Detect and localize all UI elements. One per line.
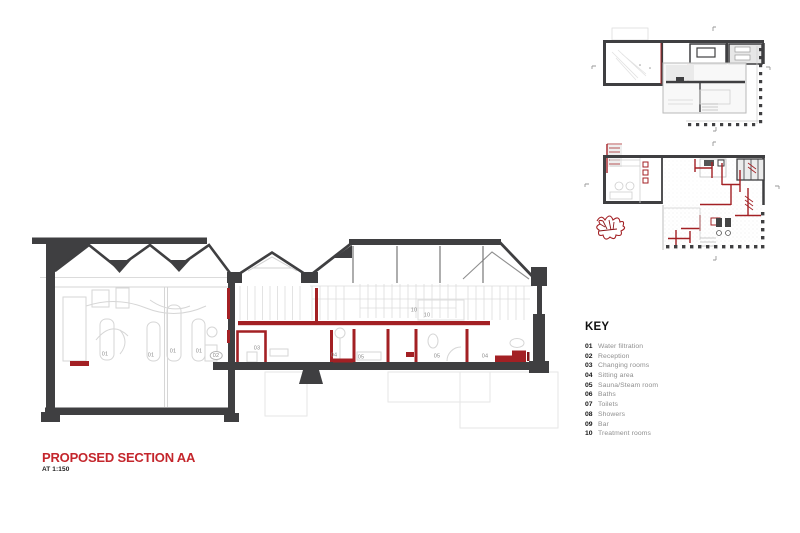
key-item-label: Sitting area: [598, 372, 634, 379]
key-item-label: Changing rooms: [598, 362, 649, 369]
drawing-sheet: 010101010203040510100504 KEY 01 Water fi…: [0, 0, 800, 533]
key-item-label: Sauna/Steam room: [598, 382, 658, 389]
key-item: 04 Sitting area: [585, 372, 765, 382]
key-item: 02 Reception: [585, 353, 765, 363]
key-item-number: 04: [585, 372, 598, 379]
key-item-number: 10: [585, 430, 598, 437]
key-list: 01 Water filtration 02 Reception 03 Chan…: [585, 343, 765, 440]
key-item-number: 02: [585, 353, 598, 360]
section-floor-slabs: [45, 362, 546, 415]
key-item-number: 01: [585, 343, 598, 350]
drawing-title: PROPOSED SECTION AA: [42, 451, 195, 465]
title-block: PROPOSED SECTION AA AT 1:150: [42, 451, 195, 473]
key-item-label: Reception: [598, 353, 630, 360]
key-heading: KEY: [585, 321, 765, 333]
key-item: 08 Showers: [585, 411, 765, 421]
key-item: 01 Water filtration: [585, 343, 765, 353]
key-item: 07 Toilets: [585, 401, 765, 411]
floor-plan-1: [592, 27, 770, 131]
section-interior-linework: [40, 257, 558, 428]
key-item-label: Bar: [598, 421, 609, 428]
key-legend: KEY 01 Water filtration 02 Reception 03 …: [585, 321, 765, 440]
key-item: 10 Treatment rooms: [585, 430, 765, 440]
key-item-number: 08: [585, 411, 598, 418]
plan1-overlay-box: [663, 63, 746, 113]
key-item-number: 05: [585, 382, 598, 389]
key-item-label: Showers: [598, 411, 625, 418]
plan2-lockers: [643, 162, 648, 183]
section-left-building: [32, 238, 233, 423]
key-item-label: Toilets: [598, 401, 618, 408]
key-item-label: Baths: [598, 391, 616, 398]
plant-scribble-symbol: [597, 216, 625, 239]
key-item-label: Treatment rooms: [598, 430, 651, 437]
key-item-label: Water filtration: [598, 343, 643, 350]
key-item-number: 09: [585, 421, 598, 428]
key-item: 03 Changing rooms: [585, 362, 765, 372]
drawing-scale: AT 1:150: [42, 466, 195, 473]
key-item-number: 07: [585, 401, 598, 408]
section-drawing: [32, 238, 558, 429]
key-item: 05 Sauna/Steam room: [585, 382, 765, 392]
key-item-number: 06: [585, 391, 598, 398]
key-item: 06 Baths: [585, 391, 765, 401]
floor-plan-2: [585, 142, 779, 260]
key-item-number: 03: [585, 362, 598, 369]
key-item: 09 Bar: [585, 421, 765, 431]
